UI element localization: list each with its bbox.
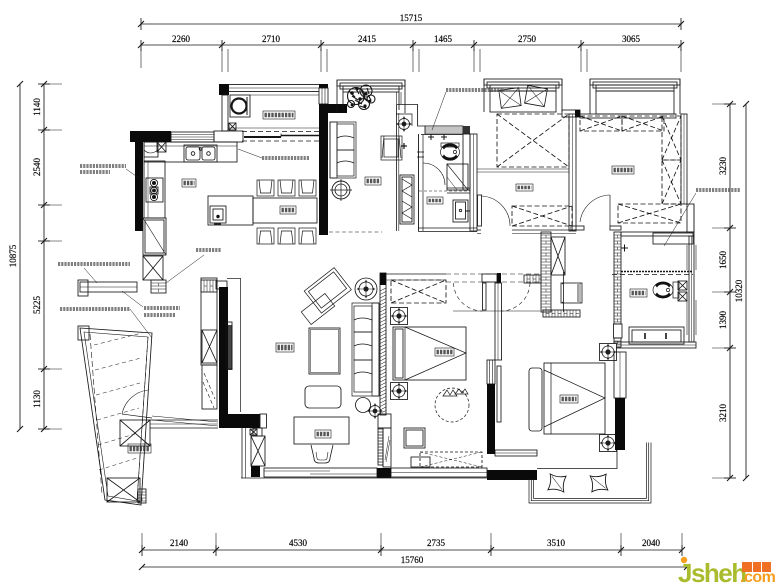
- svg-text:3230: 3230: [718, 157, 728, 176]
- svg-text:2710: 2710: [262, 34, 281, 44]
- svg-text:1465: 1465: [434, 34, 453, 44]
- svg-text:4530: 4530: [289, 538, 308, 548]
- svg-text:2735: 2735: [427, 538, 446, 548]
- svg-text:1650: 1650: [718, 251, 728, 270]
- svg-text:1140: 1140: [32, 98, 42, 116]
- svg-text:2750: 2750: [518, 34, 537, 44]
- svg-text:1390: 1390: [718, 311, 728, 330]
- svg-text:3210: 3210: [718, 404, 728, 423]
- svg-text:15715: 15715: [400, 13, 423, 23]
- svg-text:2540: 2540: [32, 158, 42, 177]
- svg-text:2040: 2040: [642, 538, 661, 548]
- svg-text:15760: 15760: [401, 555, 424, 565]
- svg-text:10875: 10875: [8, 244, 18, 267]
- svg-text:3065: 3065: [622, 34, 641, 44]
- svg-text:3510: 3510: [547, 538, 566, 548]
- svg-text:2260: 2260: [172, 34, 191, 44]
- svg-text:1130: 1130: [32, 390, 42, 408]
- svg-text:Jsheh: Jsheh: [678, 558, 746, 585]
- svg-text:10320: 10320: [734, 279, 744, 302]
- svg-text:2415: 2415: [358, 34, 377, 44]
- svg-text:2140: 2140: [170, 538, 189, 548]
- svg-text:5225: 5225: [32, 296, 42, 315]
